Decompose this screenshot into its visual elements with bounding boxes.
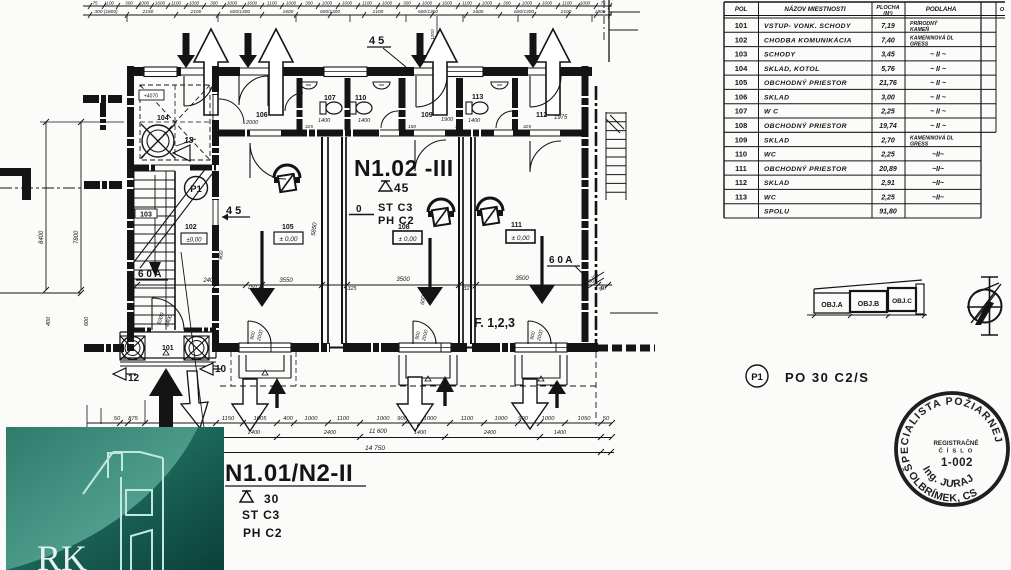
svg-text:0: 0 <box>356 204 362 215</box>
svg-text:325: 325 <box>463 286 473 292</box>
svg-text:REGISTRAČNÉ: REGISTRAČNÉ <box>933 439 978 447</box>
svg-text:3550: 3550 <box>279 278 293 284</box>
svg-text:1900: 1900 <box>441 117 454 123</box>
svg-text:110: 110 <box>355 95 366 102</box>
svg-text:113: 113 <box>735 192 747 201</box>
svg-text:45: 45 <box>394 181 409 195</box>
svg-text:1150: 1150 <box>222 416 235 422</box>
svg-text:1600: 1600 <box>247 1 258 6</box>
svg-text:2400: 2400 <box>483 430 497 436</box>
svg-text:1600: 1600 <box>283 9 294 15</box>
svg-text:108: 108 <box>735 121 748 130</box>
svg-text:2100: 2100 <box>560 9 572 15</box>
svg-text:300: 300 <box>305 1 313 6</box>
svg-text:900: 900 <box>397 416 407 422</box>
svg-text:300 (1800): 300 (1800) <box>94 9 118 15</box>
svg-text:SKLAD: SKLAD <box>764 137 789 144</box>
svg-text:~II~: ~II~ <box>932 166 944 173</box>
svg-text:8400: 8400 <box>39 230 45 244</box>
svg-text:91,80: 91,80 <box>879 209 897 216</box>
svg-text:OBJ.A: OBJ.A <box>821 302 842 309</box>
svg-text:1000: 1000 <box>382 1 393 6</box>
svg-text:1000: 1000 <box>139 1 150 6</box>
svg-text:W C: W C <box>764 109 778 116</box>
svg-text:1000: 1000 <box>580 1 591 6</box>
svg-text:300: 300 <box>125 1 133 6</box>
svg-text:3500: 3500 <box>396 277 410 283</box>
svg-text:6 0 A: 6 0 A <box>138 269 162 280</box>
svg-text:3,45: 3,45 <box>881 52 895 59</box>
svg-text:101: 101 <box>735 21 748 30</box>
svg-text:107: 107 <box>735 107 748 116</box>
svg-text:OBCHODNÝ PRIESTOR: OBCHODNÝ PRIESTOR <box>764 121 847 130</box>
svg-text:KAMENINOVÁ DL: KAMENINOVÁ DL <box>910 134 954 141</box>
svg-text:21,76: 21,76 <box>878 80 897 87</box>
svg-text:SPOLU: SPOLU <box>764 209 790 216</box>
svg-text:2,25: 2,25 <box>880 152 895 159</box>
svg-text:~ II ~: ~ II ~ <box>930 80 946 87</box>
svg-text:600: 600 <box>420 294 427 305</box>
svg-text:103: 103 <box>735 50 748 59</box>
svg-text:600/1300: 600/1300 <box>230 9 250 15</box>
svg-text:1100: 1100 <box>562 1 572 6</box>
svg-text:3500: 3500 <box>515 276 529 282</box>
svg-text:107: 107 <box>324 95 336 102</box>
svg-text:1400: 1400 <box>358 118 371 124</box>
svg-text:1000: 1000 <box>422 1 433 6</box>
svg-text:1000: 1000 <box>542 416 556 422</box>
svg-text:1000: 1000 <box>227 1 238 6</box>
svg-text:4 5: 4 5 <box>226 205 241 217</box>
svg-text:2,25: 2,25 <box>880 109 895 116</box>
svg-text:75: 75 <box>600 1 606 6</box>
svg-text:1400: 1400 <box>318 118 331 124</box>
svg-text:P1: P1 <box>751 372 763 383</box>
svg-text:1000: 1000 <box>424 416 438 422</box>
svg-text:400: 400 <box>283 416 293 422</box>
svg-text:14 750: 14 750 <box>365 445 385 452</box>
svg-text:6 0 A: 6 0 A <box>549 255 573 266</box>
svg-text:OBCHODNÝ PRIESTOR: OBCHODNÝ PRIESTOR <box>764 78 847 87</box>
svg-text:1000: 1000 <box>495 416 509 422</box>
svg-text:11 600: 11 600 <box>369 429 388 435</box>
svg-text:1-002: 1-002 <box>941 457 973 469</box>
svg-text:325: 325 <box>455 124 463 130</box>
svg-text:1000: 1000 <box>377 416 391 422</box>
svg-text:106: 106 <box>256 112 268 119</box>
svg-text:112: 112 <box>735 178 747 187</box>
svg-text:113: 113 <box>472 94 483 101</box>
svg-text:7,19: 7,19 <box>881 23 895 30</box>
svg-text:600/1300: 600/1300 <box>418 9 438 15</box>
svg-text:111: 111 <box>511 222 522 229</box>
svg-text:900: 900 <box>518 416 528 422</box>
svg-text:75: 75 <box>92 1 98 6</box>
svg-text:WC: WC <box>764 194 776 201</box>
svg-text:2400: 2400 <box>247 430 261 436</box>
svg-text:101: 101 <box>162 345 174 352</box>
svg-text:105: 105 <box>735 78 748 87</box>
svg-text:OBJ.B: OBJ.B <box>858 301 879 308</box>
svg-text:1400: 1400 <box>414 430 427 436</box>
svg-text:1975: 1975 <box>554 115 568 121</box>
svg-text:1100: 1100 <box>171 1 181 6</box>
svg-text:104: 104 <box>735 64 748 73</box>
svg-text:1000: 1000 <box>522 1 533 6</box>
svg-text:PH C2: PH C2 <box>243 526 282 540</box>
svg-text:600: 600 <box>84 316 90 326</box>
svg-text:600/1300: 600/1300 <box>514 9 534 15</box>
svg-text:2400: 2400 <box>323 430 337 436</box>
svg-text:PRÍRODNÝ: PRÍRODNÝ <box>910 20 938 27</box>
svg-text:400: 400 <box>46 316 52 326</box>
svg-text:300: 300 <box>503 1 511 6</box>
svg-text:105: 105 <box>282 224 294 231</box>
svg-text:111: 111 <box>735 164 747 173</box>
svg-text:RK: RK <box>37 538 87 570</box>
svg-text:SKLAD, KOTOL: SKLAD, KOTOL <box>764 66 820 73</box>
svg-text:1600: 1600 <box>542 1 553 6</box>
svg-text:~II~: ~II~ <box>932 194 944 201</box>
svg-text:~ II ~: ~ II ~ <box>930 52 946 59</box>
svg-text:20,89: 20,89 <box>878 166 897 173</box>
svg-text:325: 325 <box>523 124 531 130</box>
svg-text:750: 750 <box>247 285 257 291</box>
svg-text:+4070: +4070 <box>144 94 158 100</box>
svg-text:OBCHODNÝ PRIESTOR: OBCHODNÝ PRIESTOR <box>764 164 847 173</box>
svg-text:50: 50 <box>114 416 121 422</box>
svg-text:~ II ~: ~ II ~ <box>930 66 946 73</box>
svg-text:± 0,00: ± 0,00 <box>398 236 416 243</box>
svg-text:~ II ~: ~ II ~ <box>930 94 946 101</box>
svg-text:1000: 1000 <box>286 1 297 6</box>
svg-text:103: 103 <box>140 212 152 219</box>
svg-text:104: 104 <box>157 115 169 122</box>
svg-text:1600: 1600 <box>442 1 453 6</box>
svg-text:4 5: 4 5 <box>369 35 384 47</box>
svg-text:Č Í S L O: Č Í S L O <box>939 447 974 455</box>
svg-text:600/1300: 600/1300 <box>320 9 340 15</box>
svg-text:2,70: 2,70 <box>880 137 895 144</box>
svg-text:19,74: 19,74 <box>879 123 897 130</box>
svg-text:2100: 2100 <box>372 9 384 15</box>
svg-text:12: 12 <box>128 373 140 384</box>
svg-text:GRESS: GRESS <box>910 41 929 47</box>
svg-text:POL: POL <box>735 7 748 13</box>
svg-text:OBJ.C: OBJ.C <box>892 298 912 305</box>
svg-text:1100: 1100 <box>337 416 350 422</box>
svg-text:PODLAHA: PODLAHA <box>926 6 957 13</box>
svg-text:N1.01/N2-II: N1.01/N2-II <box>225 460 353 487</box>
svg-text:±0,00: ±0,00 <box>187 238 203 244</box>
svg-text:30: 30 <box>264 492 279 506</box>
svg-text:ST C3: ST C3 <box>242 508 280 522</box>
svg-text:5,76: 5,76 <box>881 66 895 73</box>
svg-text:~ II ~: ~ II ~ <box>930 109 946 116</box>
svg-text:± 0,00: ± 0,00 <box>279 236 297 243</box>
svg-text:± 0,00: ± 0,00 <box>511 235 529 242</box>
svg-text:2400: 2400 <box>202 278 217 284</box>
svg-text:1100: 1100 <box>104 1 114 6</box>
svg-text:1050: 1050 <box>578 416 592 422</box>
svg-text:ST C3: ST C3 <box>378 202 413 214</box>
svg-text:1005: 1005 <box>254 416 268 422</box>
svg-text:1100: 1100 <box>267 1 277 6</box>
svg-text:~II~: ~II~ <box>932 180 944 187</box>
svg-text:SKLAD: SKLAD <box>764 180 789 187</box>
svg-text:KAMENINOVÁ DL: KAMENINOVÁ DL <box>910 34 954 41</box>
svg-text:2150: 2150 <box>142 9 154 15</box>
svg-text:CHODBA KOMUNIKÁCIA: CHODBA KOMUNIKÁCIA <box>764 35 852 44</box>
svg-text:1100: 1100 <box>362 1 372 6</box>
svg-text:7800: 7800 <box>74 230 80 244</box>
svg-text:1100: 1100 <box>462 1 472 6</box>
svg-text:109: 109 <box>735 135 748 144</box>
svg-text:102: 102 <box>185 224 197 231</box>
svg-text:2100: 2100 <box>190 9 202 15</box>
svg-text:1000: 1000 <box>305 416 319 422</box>
svg-text:2,91: 2,91 <box>880 180 895 187</box>
svg-text:1000: 1000 <box>189 1 200 6</box>
svg-text:50: 50 <box>603 416 610 422</box>
svg-text:112: 112 <box>536 112 547 119</box>
svg-text:PH C2: PH C2 <box>378 215 414 227</box>
svg-text:10: 10 <box>215 364 227 375</box>
svg-text:1400: 1400 <box>554 430 567 436</box>
svg-text:~II~: ~II~ <box>932 152 944 159</box>
svg-text:~ II ~: ~ II ~ <box>930 123 946 130</box>
svg-text:1000: 1000 <box>322 1 333 6</box>
svg-text:O: O <box>1000 7 1005 13</box>
svg-text:1600: 1600 <box>342 1 353 6</box>
svg-text:102: 102 <box>735 35 748 44</box>
svg-text:VSTUP- VONK. SCHODY: VSTUP- VONK. SCHODY <box>764 23 852 30</box>
svg-text:2000: 2000 <box>245 120 259 126</box>
svg-text:WC: WC <box>764 152 776 159</box>
svg-text:7,40: 7,40 <box>881 37 895 44</box>
svg-text:109: 109 <box>421 112 433 119</box>
svg-text:1400: 1400 <box>468 118 481 124</box>
svg-text:F. 1,2,3: F. 1,2,3 <box>474 316 515 330</box>
svg-text:KAMEŇ: KAMEŇ <box>910 26 929 33</box>
svg-text:PO 30 C2/S: PO 30 C2/S <box>785 370 869 385</box>
svg-text:NÁZOV MIESTNOSTI: NÁZOV MIESTNOSTI <box>784 6 845 13</box>
svg-text:(M²): (M²) <box>883 11 892 17</box>
svg-text:300: 300 <box>403 1 411 6</box>
svg-text:300: 300 <box>210 1 218 6</box>
svg-text:1100: 1100 <box>461 416 474 422</box>
svg-text:2,25: 2,25 <box>880 194 895 201</box>
svg-text:900: 900 <box>218 249 225 260</box>
svg-text:1600: 1600 <box>155 1 166 6</box>
svg-text:110: 110 <box>735 150 747 159</box>
svg-text:N1.02 -III: N1.02 -III <box>354 155 454 181</box>
svg-text:875: 875 <box>128 416 138 422</box>
svg-text:P1: P1 <box>190 184 202 195</box>
svg-text:106: 106 <box>735 92 748 101</box>
svg-text:SKLAD: SKLAD <box>764 94 789 101</box>
svg-text:325: 325 <box>305 124 313 130</box>
svg-text:325: 325 <box>347 286 357 292</box>
svg-text:1000: 1000 <box>482 1 493 6</box>
svg-text:3,00: 3,00 <box>881 94 895 101</box>
svg-text:GRESS: GRESS <box>910 141 929 147</box>
svg-text:1600: 1600 <box>473 9 484 15</box>
svg-text:SCHODY: SCHODY <box>764 52 797 59</box>
svg-text:150: 150 <box>408 124 416 130</box>
